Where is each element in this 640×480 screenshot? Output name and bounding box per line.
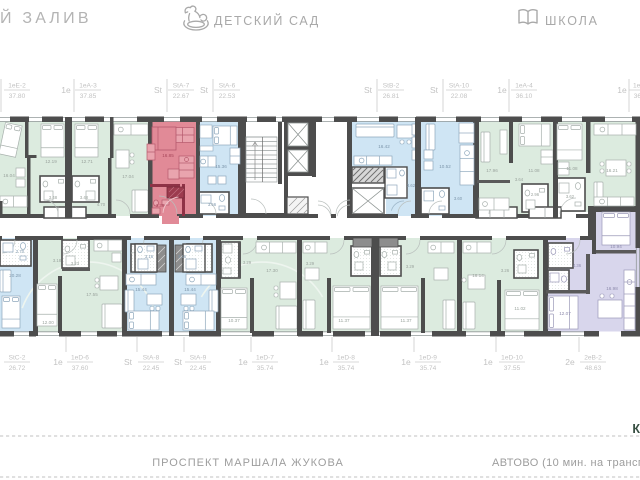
svg-text:3.56: 3.56 [208, 202, 217, 207]
svg-text:37.55: 37.55 [504, 365, 521, 372]
svg-text:17.30: 17.30 [266, 268, 278, 273]
svg-text:3.29: 3.29 [406, 264, 415, 269]
svg-text:16.85: 16.85 [162, 153, 174, 158]
svg-text:3.64: 3.64 [515, 177, 524, 182]
svg-text:10.94: 10.94 [610, 244, 622, 249]
svg-text:2.96: 2.96 [531, 192, 540, 197]
svg-text:StА-7: StА-7 [173, 83, 190, 90]
svg-text:36.10: 36.10 [516, 93, 533, 100]
svg-text:22.45: 22.45 [143, 365, 160, 372]
svg-text:4.70: 4.70 [97, 202, 106, 207]
svg-text:4.36: 4.36 [573, 263, 582, 268]
svg-text:17.96: 17.96 [486, 168, 498, 173]
svg-text:12.00: 12.00 [42, 320, 54, 325]
svg-text:St: St [154, 85, 163, 95]
svg-text:ШКОЛА: ШКОЛА [545, 14, 599, 28]
svg-text:37.80: 37.80 [9, 93, 26, 100]
svg-text:16.98: 16.98 [606, 286, 618, 291]
svg-text:ПРОСПЕКТ МАРШАЛА ЖУКОВА: ПРОСПЕКТ МАРШАЛА ЖУКОВА [152, 457, 344, 469]
svg-text:22.45: 22.45 [190, 365, 207, 372]
svg-text:16.14: 16.14 [472, 273, 484, 278]
svg-text:22.08: 22.08 [451, 93, 468, 100]
svg-text:22.67: 22.67 [173, 93, 190, 100]
svg-text:12.71: 12.71 [81, 159, 93, 164]
svg-text:1еС-2: 1еС-2 [633, 83, 640, 90]
svg-text:11.08: 11.08 [528, 168, 540, 173]
svg-text:10.37: 10.37 [228, 318, 240, 323]
svg-text:3.29: 3.29 [306, 261, 315, 266]
svg-text:St: St [364, 85, 373, 95]
svg-text:11.37: 11.37 [400, 318, 412, 323]
svg-text:35.74: 35.74 [257, 365, 274, 372]
svg-text:48.63: 48.63 [585, 365, 602, 372]
svg-text:St: St [430, 85, 439, 95]
svg-text:35.74: 35.74 [338, 365, 355, 372]
svg-text:26.72: 26.72 [9, 365, 26, 372]
svg-text:3.48: 3.48 [80, 195, 89, 200]
svg-text:11.37: 11.37 [338, 318, 350, 323]
svg-text:37.60: 37.60 [72, 365, 89, 372]
svg-text:3.36: 3.36 [156, 203, 165, 208]
svg-text:St: St [174, 357, 183, 367]
svg-text:15.44: 15.44 [184, 287, 196, 292]
svg-text:3.62: 3.62 [566, 194, 575, 199]
svg-text:17.04: 17.04 [122, 174, 134, 179]
svg-text:1еЕ-2: 1еЕ-2 [8, 83, 26, 90]
svg-text:12.07: 12.07 [559, 311, 571, 316]
svg-text:22.53: 22.53 [219, 93, 236, 100]
svg-text:1еА-3: 1еА-3 [79, 83, 97, 90]
svg-text:1еD-7: 1еD-7 [256, 355, 274, 362]
svg-text:3.23: 3.23 [71, 261, 80, 266]
svg-text:3.26: 3.26 [501, 268, 510, 273]
svg-text:1е: 1е [401, 357, 411, 367]
svg-text:15.36: 15.36 [215, 164, 227, 169]
svg-text:1е: 1е [483, 357, 493, 367]
svg-text:StС-2: StС-2 [9, 355, 26, 362]
svg-text:20.28: 20.28 [9, 273, 21, 278]
svg-text:2.70: 2.70 [16, 249, 25, 254]
svg-text:StВ-2: StВ-2 [383, 83, 400, 90]
svg-text:1еА-4: 1еА-4 [515, 83, 533, 90]
svg-text:3.18: 3.18 [53, 258, 62, 263]
svg-text:1е: 1е [617, 85, 627, 95]
svg-text:3.16: 3.16 [178, 254, 187, 259]
svg-text:StА-9: StА-9 [190, 355, 207, 362]
svg-text:37.85: 37.85 [80, 93, 97, 100]
svg-text:StА-6: StА-6 [219, 83, 236, 90]
svg-text:1е: 1е [497, 85, 507, 95]
svg-text:36.33: 36.33 [634, 93, 640, 100]
svg-text:St: St [124, 357, 133, 367]
svg-text:3.62: 3.62 [407, 183, 416, 188]
svg-text:16.42: 16.42 [378, 144, 390, 149]
svg-text:11.02: 11.02 [514, 306, 526, 311]
svg-text:АВТОВО (10 мин. на трансп: АВТОВО (10 мин. на трансп [492, 457, 640, 469]
svg-text:ДЕТСКИЙ САД: ДЕТСКИЙ САД [214, 13, 320, 28]
svg-text:2е: 2е [565, 357, 575, 367]
svg-text:1е: 1е [53, 357, 63, 367]
svg-text:2еВ-2: 2еВ-2 [584, 355, 602, 362]
svg-text:1е: 1е [319, 357, 329, 367]
svg-text:St: St [200, 85, 209, 95]
svg-text:1е: 1е [61, 85, 71, 95]
svg-text:17.55: 17.55 [86, 292, 98, 297]
svg-text:3.29: 3.29 [243, 260, 252, 265]
svg-text:11.08: 11.08 [566, 166, 578, 171]
svg-text:Й ЗАЛИВ: Й ЗАЛИВ [0, 8, 92, 27]
svg-text:1еD-9: 1еD-9 [419, 355, 437, 362]
svg-text:3.16: 3.16 [145, 254, 154, 259]
svg-text:35.74: 35.74 [420, 365, 437, 372]
svg-text:3.60: 3.60 [454, 196, 463, 201]
svg-text:15.44: 15.44 [135, 287, 147, 292]
svg-text:12.19: 12.19 [45, 159, 57, 164]
svg-text:26.81: 26.81 [383, 93, 400, 100]
svg-text:К: К [632, 422, 640, 436]
svg-text:16.21: 16.21 [606, 168, 618, 173]
svg-text:1еD-10: 1еD-10 [501, 355, 523, 362]
svg-text:16.04: 16.04 [3, 173, 15, 178]
svg-text:1е: 1е [238, 357, 248, 367]
svg-text:3.48: 3.48 [49, 195, 58, 200]
svg-text:1еD-8: 1еD-8 [337, 355, 355, 362]
svg-text:1еD-6: 1еD-6 [71, 355, 89, 362]
svg-text:StА-10: StА-10 [449, 83, 469, 90]
svg-text:StА-8: StА-8 [143, 355, 160, 362]
svg-text:10.52: 10.52 [439, 164, 451, 169]
